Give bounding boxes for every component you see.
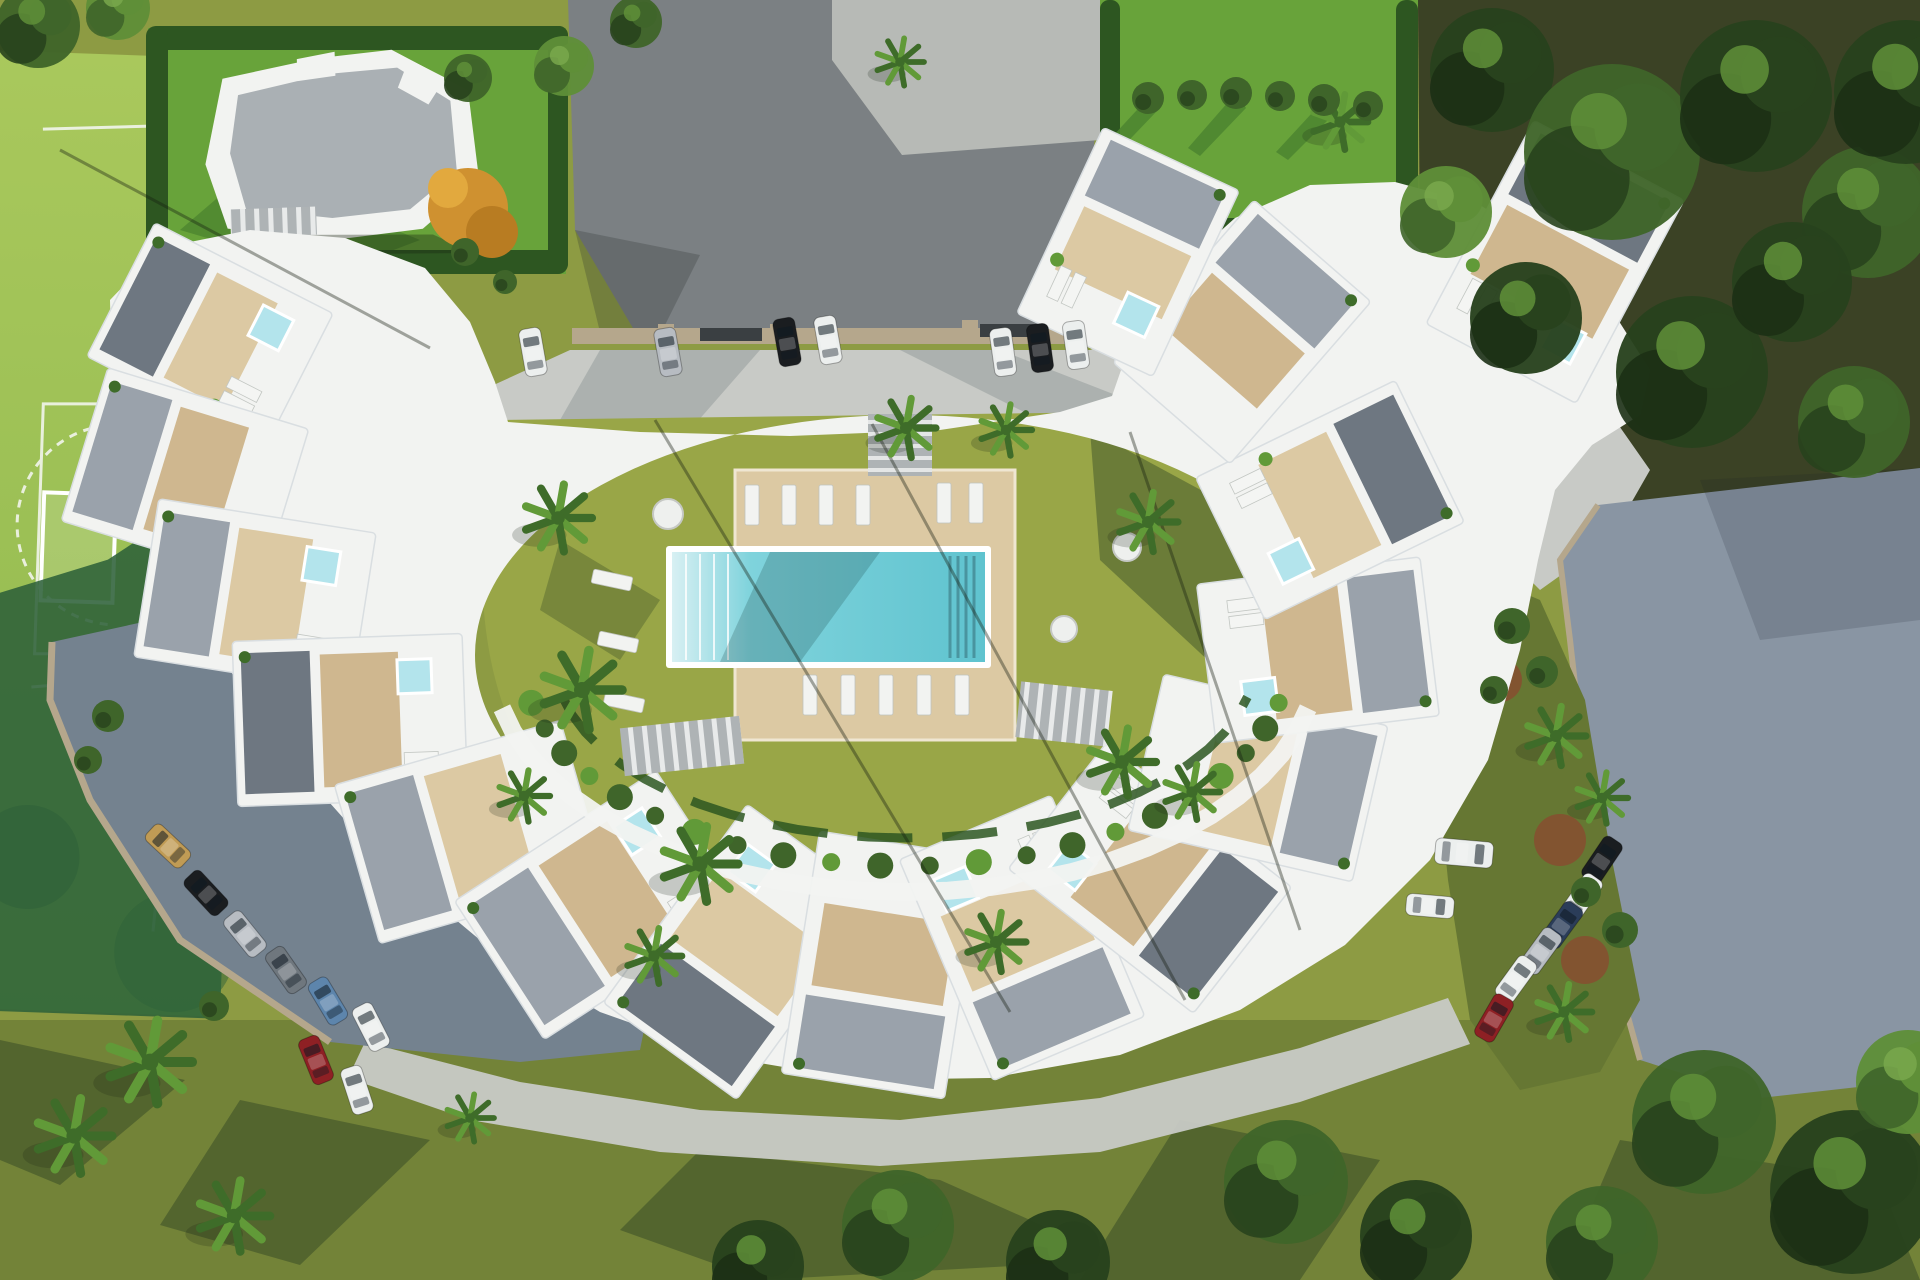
sun-lounger bbox=[879, 675, 893, 715]
roof-terrace bbox=[320, 652, 403, 788]
planter-bush bbox=[1059, 832, 1085, 858]
planter-bush bbox=[580, 767, 598, 785]
tree bbox=[842, 1170, 954, 1280]
bush bbox=[1177, 80, 1207, 110]
planter-bush bbox=[607, 784, 633, 810]
planter-bush bbox=[867, 853, 893, 879]
gravel-roof bbox=[241, 651, 315, 794]
planter-bush bbox=[646, 807, 664, 825]
bush bbox=[92, 700, 124, 732]
tree bbox=[1470, 262, 1582, 374]
sun-lounger bbox=[917, 675, 931, 715]
tree bbox=[1632, 1050, 1776, 1194]
van bbox=[1434, 838, 1494, 869]
tree bbox=[444, 54, 492, 102]
planter-bush bbox=[1106, 823, 1124, 841]
round-table bbox=[1051, 616, 1077, 642]
bush bbox=[1308, 84, 1340, 116]
gate-left bbox=[700, 328, 762, 341]
tree bbox=[1524, 64, 1700, 240]
bush bbox=[1132, 82, 1164, 114]
planter-bush bbox=[822, 853, 840, 871]
sun-lounger bbox=[969, 483, 983, 523]
planter-bush bbox=[1252, 716, 1278, 742]
bush bbox=[1494, 608, 1530, 644]
sun-lounger bbox=[782, 485, 796, 525]
sun-lounger bbox=[856, 485, 870, 525]
sun-lounger bbox=[745, 485, 759, 525]
tree bbox=[1680, 20, 1832, 172]
bush bbox=[1526, 656, 1558, 688]
sun-lounger bbox=[955, 675, 969, 715]
neighbour-villa-parcel bbox=[146, 26, 568, 274]
sun-lounger bbox=[937, 483, 951, 523]
aerial-render: Aerial 3D render of a crescent-shaped re… bbox=[0, 0, 1920, 1280]
bush bbox=[451, 238, 479, 266]
bush bbox=[1265, 81, 1295, 111]
swimming-pool bbox=[666, 546, 991, 668]
planter-bush bbox=[770, 842, 796, 868]
bush bbox=[1353, 91, 1383, 121]
bush bbox=[493, 270, 517, 294]
planter-bush bbox=[1270, 694, 1288, 712]
sun-lounger bbox=[841, 675, 855, 715]
tree bbox=[1732, 222, 1852, 342]
bush bbox=[1220, 77, 1252, 109]
bush bbox=[74, 746, 102, 774]
bush bbox=[1571, 877, 1601, 907]
tree bbox=[534, 36, 594, 96]
bush bbox=[1602, 912, 1638, 948]
scene-canvas bbox=[0, 0, 1920, 1280]
round-table bbox=[653, 499, 683, 529]
car bbox=[1405, 893, 1455, 919]
bush bbox=[199, 991, 229, 1021]
planter-bush bbox=[966, 849, 992, 875]
bush bbox=[1480, 676, 1508, 704]
tree bbox=[1224, 1120, 1348, 1244]
planter-bush bbox=[551, 740, 577, 766]
tree bbox=[1400, 166, 1492, 258]
plunge-pool bbox=[302, 547, 341, 586]
plunge-pool bbox=[397, 659, 432, 694]
sun-lounger bbox=[819, 485, 833, 525]
tree bbox=[1798, 366, 1910, 478]
planter-bush bbox=[1018, 846, 1036, 864]
asphalt-driveway bbox=[568, 0, 1105, 344]
